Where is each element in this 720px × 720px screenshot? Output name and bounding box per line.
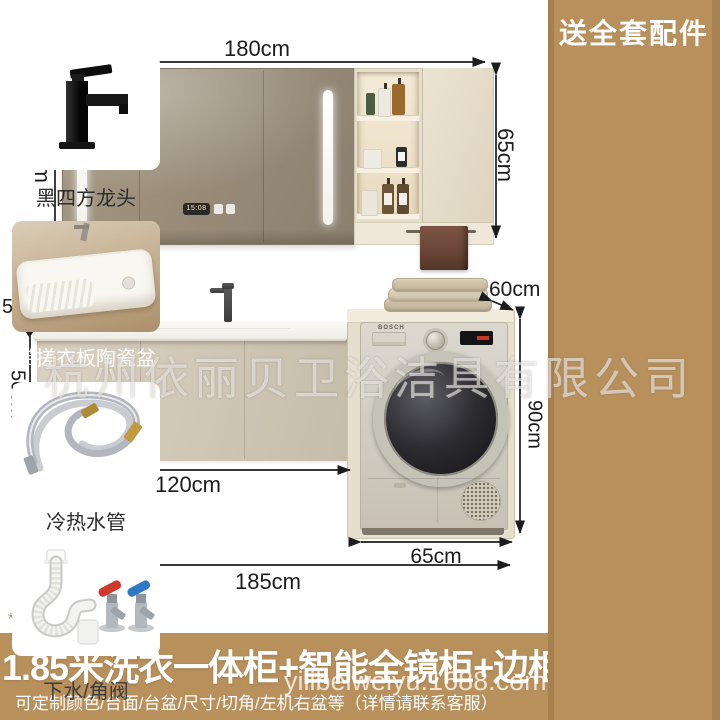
toiletry-bottle: [382, 184, 394, 214]
hanging-towel: [420, 226, 468, 270]
washer-panel-seam: [437, 478, 438, 522]
toiletry-jar: [361, 190, 378, 216]
vent-grille-icon: [461, 481, 501, 521]
mirror-door-seam: [263, 71, 264, 242]
washer-plinth: [362, 528, 504, 535]
toiletry-bottle: [366, 93, 375, 115]
dim-label-mirror-height: 65cm: [492, 125, 518, 185]
washer-panel-seam: [368, 478, 500, 479]
towel-stack: [392, 278, 488, 292]
vanity-faucet: [222, 283, 234, 289]
toiletry-jar: [363, 149, 382, 169]
accessory-card-drain: [12, 546, 160, 656]
led-strip-icon: [323, 90, 333, 225]
toiletry-bottle: [392, 84, 405, 115]
accessory-label: 下水/角阀: [0, 675, 172, 704]
service-flap-latch: [394, 483, 406, 488]
sidebar-edge: [712, 0, 720, 720]
sidebar-title: 送全套配件: [548, 12, 720, 52]
site-watermark: yilibeiweiyu.1688.com: [284, 666, 547, 697]
product-poster: 15:08 BOSCH: [0, 0, 720, 720]
accessory-label: 冷热水管: [0, 506, 172, 535]
accessory-label: 黑四方龙头: [0, 182, 172, 211]
mirror-clock-display: 15:08: [183, 203, 210, 215]
accessory-card-basin: [12, 221, 160, 332]
toiletry-bottle: [378, 88, 391, 117]
company-watermark: 杭州依丽贝卫浴洁具有限公司: [44, 342, 694, 407]
dim-label-washer-depth: 60cm: [489, 278, 540, 302]
accessory-card-faucet: [12, 54, 160, 170]
mirror-touch-button-icon: [214, 204, 223, 214]
drain-valve-icon: [12, 546, 160, 656]
toiletry-bottle: [397, 184, 409, 214]
dim-label-mirror-width: 180cm: [207, 36, 307, 62]
side-cabinet-door: [422, 68, 493, 223]
mirror-touch-button-icon: [226, 204, 235, 214]
dim-label-washer-width: 65cm: [386, 545, 486, 569]
dim-label-total-width: 185cm: [218, 569, 318, 595]
vanity-faucet: [224, 288, 232, 322]
washer-brand-logo: BOSCH: [378, 325, 405, 331]
perfume-bottle: [396, 147, 407, 167]
